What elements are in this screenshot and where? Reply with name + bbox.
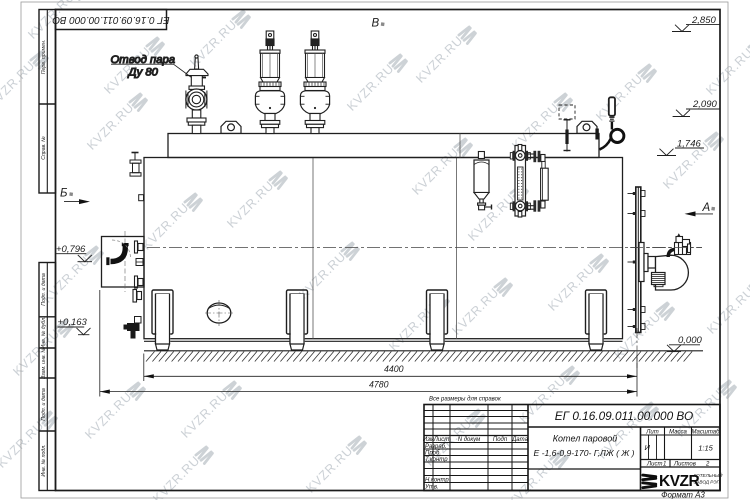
- svg-text:Проб.: Проб.: [425, 451, 441, 457]
- svg-text:Перв. примен.: Перв. примен.: [41, 40, 47, 74]
- svg-text:А: А: [702, 202, 711, 214]
- svg-text:Е -1,6-0,9-170- Г,ЛЖ ( Ж ): Е -1,6-0,9-170- Г,ЛЖ ( Ж ): [534, 448, 635, 458]
- svg-text:Взам. инв. №: Взам. инв. №: [41, 347, 47, 379]
- svg-text:Дата: Дата: [511, 437, 528, 443]
- svg-text:В: В: [372, 18, 380, 30]
- svg-text:Листов: Листов: [673, 462, 696, 468]
- svg-text:Лист: Лист: [433, 437, 449, 443]
- svg-text:И: И: [645, 443, 651, 452]
- svg-text:Все размеры для справок: Все размеры для справок: [429, 397, 502, 403]
- svg-text:Инв. № подл.: Инв. № подл.: [41, 444, 47, 476]
- svg-text:Справ. №: Справ. №: [41, 136, 47, 160]
- svg-text:КОТЕЛЬНЫЙ: КОТЕЛЬНЫЙ: [694, 471, 724, 478]
- svg-text:2: 2: [705, 462, 710, 468]
- svg-text:Н.контр: Н.контр: [425, 478, 449, 484]
- svg-text:ЕГ 0.16.09.011.00.000 ВО: ЕГ 0.16.09.011.00.000 ВО: [555, 409, 693, 423]
- svg-text:4780: 4780: [369, 379, 389, 389]
- svg-text:Масштаб: Масштаб: [691, 430, 720, 436]
- svg-text:0,000: 0,000: [678, 335, 702, 346]
- svg-text:Утв.: Утв.: [424, 485, 439, 491]
- svg-text:4400: 4400: [384, 364, 404, 374]
- svg-text:Инв. № дубл.: Инв. № дубл.: [41, 317, 47, 349]
- svg-text:Лит: Лит: [645, 430, 658, 436]
- svg-text:2,090: 2,090: [692, 99, 717, 110]
- svg-text:ЕГ 0.16.09.011.00.000 ВО: ЕГ 0.16.09.011.00.000 ВО: [52, 14, 170, 25]
- svg-text:+0,796: +0,796: [56, 244, 86, 255]
- svg-text:Изм: Изм: [423, 437, 434, 443]
- svg-text:Подп: Подп: [493, 437, 508, 443]
- svg-text:Котел паровой: Котел паровой: [553, 434, 618, 444]
- svg-text:1,746: 1,746: [677, 139, 701, 150]
- svg-text:1: 1: [663, 462, 666, 468]
- svg-text:Б: Б: [60, 188, 68, 200]
- svg-text:1:15: 1:15: [698, 444, 713, 453]
- svg-text:Подп. и дата: Подп. и дата: [41, 388, 47, 421]
- svg-text:+0,163: +0,163: [58, 317, 88, 328]
- svg-text:Лист: Лист: [646, 462, 662, 468]
- svg-text:Ду 80: Ду 80: [127, 67, 159, 79]
- svg-text:N докум: N докум: [458, 437, 481, 443]
- svg-text:Формат А3: Формат А3: [661, 491, 705, 500]
- svg-text:ЗАВОД РЭП: ЗАВОД РЭП: [694, 480, 721, 485]
- svg-text:Масса: Масса: [669, 430, 687, 436]
- svg-text:Подп. и дата: Подп. и дата: [41, 273, 47, 306]
- svg-text:2,850: 2,850: [691, 15, 716, 26]
- svg-text:Т.контр: Т.контр: [425, 457, 448, 463]
- svg-text:Разраб.: Разраб.: [425, 444, 447, 450]
